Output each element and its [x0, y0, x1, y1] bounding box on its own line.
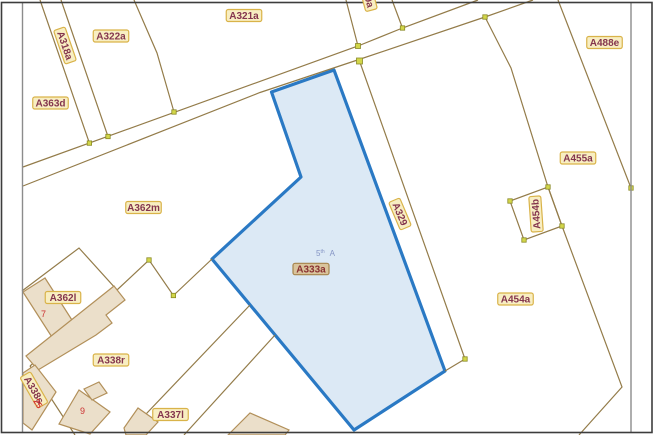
svg-text:A454b: A454b [530, 199, 543, 230]
svg-text:A362m: A362m [127, 203, 160, 214]
svg-text:9: 9 [80, 406, 85, 416]
svg-text:A455a: A455a [563, 153, 593, 164]
svg-text:A338r: A338r [97, 355, 125, 366]
svg-text:A333a: A333a [296, 264, 326, 275]
svg-text:A321a: A321a [229, 11, 259, 22]
svg-text:A363d: A363d [35, 98, 65, 109]
svg-text:A337l: A337l [157, 410, 184, 421]
svg-text:A488e: A488e [590, 38, 620, 49]
svg-text:A362l: A362l [50, 293, 77, 304]
svg-text:7: 7 [41, 309, 46, 319]
svg-text:A454a: A454a [501, 294, 531, 305]
svg-text:A322a: A322a [96, 31, 126, 42]
